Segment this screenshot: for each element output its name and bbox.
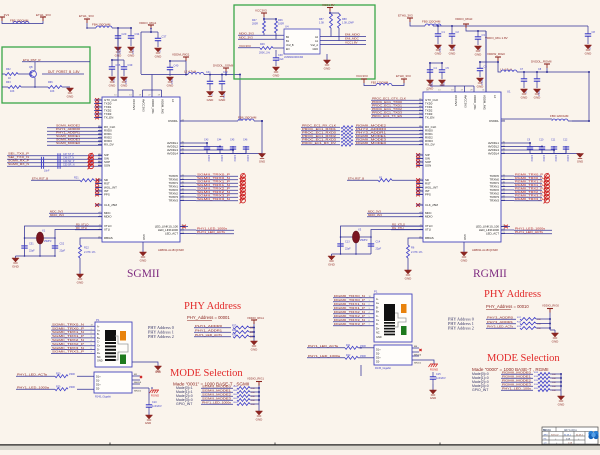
svg-text:PHY3_ADDR1: PHY3_ADDR1 <box>487 320 514 324</box>
svg-text:PHY1_LED_1000a: PHY1_LED_1000a <box>308 354 341 358</box>
svg-text:VDDM_RIG: VDDM_RIG <box>161 99 165 114</box>
svg-text:25MHz: 25MHz <box>44 240 52 243</box>
svg-text:100R: 100R <box>278 23 284 26</box>
svg-text:MDIO_3V3: MDIO_3V3 <box>50 213 64 217</box>
svg-text:B+: B+ <box>97 337 101 340</box>
svg-text:L1 4.7uH: L1 4.7uH <box>500 68 512 72</box>
svg-text:FB5 150OHM: FB5 150OHM <box>10 19 29 23</box>
svg-text:C13: C13 <box>345 241 350 244</box>
svg-text:U4: U4 <box>285 25 289 29</box>
svg-text:LX: LX <box>493 95 497 98</box>
svg-text:VCC3V3: VCC3V3 <box>454 95 458 106</box>
svg-text:TX_EN: TX_EN <box>104 116 113 120</box>
svg-text:AR7.1v4Qxx: AR7.1v4Qxx <box>564 429 578 432</box>
svg-text:FB6 150OHM: FB6 150OHM <box>238 116 257 120</box>
svg-text:GND: GND <box>461 259 469 263</box>
svg-text:FB4 150OHM: FB4 150OHM <box>92 23 111 27</box>
svg-text:D2+: D2+ <box>376 357 381 360</box>
svg-text:D-: D- <box>376 323 379 326</box>
svg-text:100nF: 100nF <box>542 155 545 162</box>
svg-text:C-: C- <box>97 341 100 344</box>
svg-text:PHY1_LED_ACTs: PHY1_LED_ACTs <box>197 230 226 234</box>
svg-text:GND: GND <box>521 96 529 100</box>
svg-text:GND: GND <box>475 53 483 57</box>
svg-text:GND: GND <box>312 48 318 51</box>
svg-text:PPS: PPS <box>425 193 431 197</box>
svg-text:RGMII_MODE3: RGMII_MODE3 <box>502 382 532 386</box>
svg-text:SHLD1: SHLD1 <box>134 390 142 392</box>
svg-text:AVDDL4: AVDDL4 <box>488 152 499 156</box>
svg-text:RGMII: RGMII <box>473 268 507 280</box>
svg-text:C40: C40 <box>174 63 179 67</box>
svg-text:GND: GND <box>256 418 264 422</box>
svg-text:PHY Address: PHY Address <box>184 301 241 312</box>
svg-text:MODE Selection: MODE Selection <box>487 353 560 364</box>
svg-text:100nF: 100nF <box>554 155 557 162</box>
svg-text:GND: GND <box>142 234 146 240</box>
svg-text:10K: 10K <box>10 90 15 93</box>
svg-text:P1: P1 <box>96 318 100 322</box>
svg-text:PHY1_ADDR0: PHY1_ADDR0 <box>195 324 223 328</box>
svg-text:DVDDL_RGMII: DVDDL_RGMII <box>531 60 552 64</box>
svg-text:VDDIO_RIG1: VDDIO_RIG1 <box>247 377 264 381</box>
svg-text:PROC_EC1_RX_DV: PROC_EC1_RX_DV <box>302 141 336 145</box>
svg-text:1nF/2KV: 1nF/2KV <box>152 405 162 408</box>
svg-text:GND: GND <box>552 340 560 344</box>
svg-text:GND: GND <box>273 74 281 78</box>
svg-text:C+: C+ <box>376 319 380 322</box>
svg-text:A+: A+ <box>97 329 101 332</box>
svg-text:VCC1.8V: VCC1.8V <box>345 41 358 45</box>
svg-text:GND: GND <box>577 160 583 164</box>
svg-text:ETH1_3V3: ETH1_3V3 <box>79 14 94 18</box>
svg-text:GND: GND <box>463 234 467 240</box>
svg-text:C4: C4 <box>434 66 438 70</box>
svg-text:D2+: D2+ <box>96 384 101 387</box>
svg-text:FB0 120OHM: FB0 120OHM <box>422 20 441 24</box>
svg-text:RGND: RGND <box>151 394 159 398</box>
svg-text:1K: 1K <box>8 77 11 80</box>
svg-text:22pF: 22pF <box>29 250 35 253</box>
svg-text:GND: GND <box>155 370 161 374</box>
svg-text:GND: GND <box>140 259 148 263</box>
svg-text:GPIO_INT: GPIO_INT <box>472 388 489 392</box>
svg-text:GND: GND <box>219 98 227 102</box>
svg-text:TRXN3: TRXN3 <box>490 199 500 203</box>
svg-text:2.37K 1%: 2.37K 1% <box>84 250 96 254</box>
svg-text:VDDO_RIG: VDDO_RIG <box>151 99 155 114</box>
svg-text:GND: GND <box>121 84 129 88</box>
svg-text:C10: C10 <box>539 139 544 142</box>
svg-text:GND: GND <box>430 396 436 400</box>
svg-text:AVDDL4: AVDDL4 <box>167 152 178 156</box>
svg-text:C8: C8 <box>592 30 596 34</box>
svg-text:R22: R22 <box>84 246 89 250</box>
svg-text:RJ45_Gigabit: RJ45_Gigabit <box>375 366 391 370</box>
svg-text:100nF: 100nF <box>220 155 223 162</box>
svg-text:D1+: D1+ <box>376 349 381 352</box>
svg-text:1.5K_DNP: 1.5K_DNP <box>342 22 354 25</box>
svg-text:XTLI: XTLI <box>425 228 431 232</box>
svg-text:U1: U1 <box>507 90 511 94</box>
svg-text:D2-: D2- <box>376 361 380 364</box>
svg-text:MODE Selection: MODE Selection <box>170 368 243 379</box>
svg-text:C10: C10 <box>152 401 157 404</box>
svg-text:GND: GND <box>324 67 332 71</box>
svg-text:GND: GND <box>97 360 103 363</box>
svg-text:D1-: D1- <box>96 380 100 383</box>
svg-text:RJ45_Gigabit: RJ45_Gigabit <box>95 395 111 399</box>
svg-text:GND: GND <box>405 277 413 281</box>
svg-text:P1: P1 <box>374 290 378 294</box>
svg-text:GND: GND <box>67 95 75 99</box>
svg-text:TX_EN: TX_EN <box>425 116 434 120</box>
svg-text:VCC3V3: VCC3V3 <box>356 74 368 78</box>
svg-text:RGND: RGND <box>430 368 438 372</box>
svg-text:PHY1_LED_ACTa: PHY1_LED_ACTa <box>308 344 339 348</box>
svg-text:GND: GND <box>435 52 443 56</box>
svg-text:2.37K 1%: 2.37K 1% <box>411 250 423 254</box>
svg-text:9070.07: 9070.07 <box>551 434 559 436</box>
svg-text:A-: A- <box>97 326 100 329</box>
svg-text:PHY3_ADDR0: PHY3_ADDR0 <box>487 315 514 319</box>
svg-text:C14: C14 <box>376 241 381 244</box>
svg-text:9%: 9% <box>544 439 547 441</box>
svg-text:GND: GND <box>376 336 382 339</box>
svg-text:PHY1_LED_1000s: PHY1_LED_1000s <box>202 400 232 404</box>
svg-text:GND: GND <box>477 85 485 89</box>
svg-text:NC: NC <box>97 356 101 359</box>
svg-text:RGMII_MODE0: RGMII_MODE0 <box>502 370 532 374</box>
svg-text:GND: GND <box>109 84 117 88</box>
svg-text:B-: B- <box>376 306 379 309</box>
svg-text:PHY_Address = 00001: PHY_Address = 00001 <box>187 315 230 320</box>
svg-text:GND: GND <box>145 421 151 425</box>
svg-text:C1: C1 <box>442 30 446 34</box>
svg-text:SGMII_MODE1: SGMII_MODE1 <box>202 388 232 392</box>
svg-text:C2: C2 <box>456 30 460 34</box>
svg-text:SGMII_MODE2: SGMII_MODE2 <box>202 392 232 396</box>
svg-text:C45: C45 <box>230 139 235 142</box>
svg-text:10K: 10K <box>50 90 55 93</box>
svg-text:Q8: Q8 <box>29 65 33 69</box>
svg-text:SGMII_MODE0: SGMII_MODE0 <box>202 384 232 388</box>
svg-text:VDDM_RIG: VDDM_RIG <box>483 95 487 110</box>
svg-text:C34: C34 <box>135 32 140 36</box>
svg-text:GND: GND <box>558 403 566 407</box>
svg-text:VCC1.8V: VCC1.8V <box>322 3 335 7</box>
svg-text:VCC3V3: VCC3V3 <box>239 44 251 48</box>
svg-text:VDDO_RIG 1.8V: VDDO_RIG 1.8V <box>485 36 508 40</box>
svg-text:150R: 150R <box>69 386 75 389</box>
svg-text:PHY Address 2: PHY Address 2 <box>148 334 174 339</box>
svg-text:100nF: 100nF <box>530 155 533 162</box>
svg-text:C50 SR_N: C50 SR_N <box>63 164 75 167</box>
svg-text:PHY3_LED_ACTs: PHY3_LED_ACTs <box>487 324 514 328</box>
svg-text:D+: D+ <box>97 352 101 355</box>
svg-text:DVDDL: DVDDL <box>168 119 178 123</box>
svg-text:GPIO_INT: GPIO_INT <box>176 402 193 406</box>
svg-text:D+: D+ <box>376 327 380 330</box>
svg-text:D2-: D2- <box>96 388 100 391</box>
svg-text:SGMII_TRX3_N: SGMII_TRX3_N <box>197 197 230 201</box>
svg-text:VDDO_RIG1: VDDO_RIG1 <box>139 21 157 25</box>
svg-text:1nF/2KV: 1nF/2KV <box>436 377 446 380</box>
svg-text:100nF: 100nF <box>566 155 569 162</box>
svg-text:SON: SON <box>425 164 431 168</box>
svg-text:CLK_25M: CLK_25M <box>104 203 117 207</box>
svg-text:LED_ACT: LED_ACT <box>486 232 499 236</box>
svg-text:ETH_RST_B: ETH_RST_B <box>32 176 48 180</box>
svg-text:GND: GND <box>155 55 163 59</box>
svg-text:22pF: 22pF <box>60 250 66 253</box>
svg-text:GND: GND <box>128 54 136 58</box>
svg-text:100nF: 100nF <box>233 155 236 162</box>
svg-text:GND: GND <box>251 348 259 352</box>
svg-text:TRXN3: TRXN3 <box>169 199 179 203</box>
svg-text:R66: R66 <box>48 81 53 84</box>
svg-text:64.09.2: 64.09.2 <box>576 434 584 436</box>
svg-text:200R: 200R <box>252 23 258 26</box>
svg-text:PHY Address 2: PHY Address 2 <box>448 325 474 330</box>
svg-text:C20: C20 <box>122 32 127 36</box>
svg-text:VDDIO_RIG1: VDDIO_RIG1 <box>247 316 264 320</box>
svg-text:VCC3V3: VCC3V3 <box>132 99 136 110</box>
svg-text:ETH_RST_R: ETH_RST_R <box>23 58 41 62</box>
svg-text:C15: C15 <box>436 373 441 376</box>
svg-text:C38: C38 <box>278 54 283 57</box>
svg-text:B-: B- <box>97 333 100 336</box>
svg-text:SHLD0: SHLD0 <box>134 382 142 384</box>
svg-text:GND: GND <box>585 52 593 56</box>
svg-text:25MHz: 25MHz <box>360 239 368 242</box>
svg-text:MDC_3V3: MDC_3V3 <box>239 36 253 40</box>
svg-text:SGMII_MODE0: SGMII_MODE0 <box>56 141 81 145</box>
svg-text:GND: GND <box>77 281 85 285</box>
svg-text:PHY1_LED_1000a: PHY1_LED_1000a <box>17 385 50 389</box>
svg-text:PHY1_LED_ACTa: PHY1_LED_ACTa <box>17 372 48 376</box>
svg-text:VCC3V3: VCC3V3 <box>255 9 267 13</box>
svg-text:GND: GND <box>449 52 457 56</box>
svg-text:R21: R21 <box>74 176 79 179</box>
svg-text:NC: NC <box>376 332 380 335</box>
svg-text:C6: C6 <box>484 64 488 68</box>
svg-text:100nF: 100nF <box>246 155 249 162</box>
svg-text:C39: C39 <box>128 63 133 67</box>
svg-text:RBIAS: RBIAS <box>425 236 434 240</box>
svg-text:C-: C- <box>376 315 379 318</box>
svg-text:BEI.CA: BEI.CA <box>543 429 551 432</box>
svg-text:RGMII_MODE2: RGMII_MODE2 <box>502 378 532 382</box>
svg-text:GND: GND <box>328 263 336 267</box>
svg-text:X3: X3 <box>358 228 362 232</box>
svg-text:R6: R6 <box>411 246 415 250</box>
svg-text:ETH0_3V3: ETH0_3V3 <box>398 14 413 18</box>
svg-text:XTLI: XTLI <box>104 228 110 232</box>
svg-text:150R: 150R <box>69 373 75 376</box>
svg-text:FB0 120OHM: FB0 120OHM <box>550 114 569 118</box>
svg-text:LX: LX <box>171 99 175 102</box>
svg-text:A-: A- <box>376 298 379 301</box>
svg-text:22pF: 22pF <box>376 248 382 251</box>
svg-text:C12: C12 <box>563 139 568 142</box>
svg-text:C36: C36 <box>116 63 121 67</box>
svg-text:PHY Address: PHY Address <box>484 289 541 300</box>
svg-text:RGMII_MODE0: RGMII_MODE0 <box>356 141 387 145</box>
svg-text:PROC_EC1_TX_EN: PROC_EC1_TX_EN <box>372 114 402 118</box>
svg-text:RX_DV: RX_DV <box>104 143 114 147</box>
svg-text:R63: R63 <box>6 81 11 84</box>
svg-text:3V3: 3V3 <box>4 13 10 17</box>
svg-text:22pF: 22pF <box>345 248 351 251</box>
svg-text:GND: GND <box>207 98 215 102</box>
svg-text:GND: GND <box>167 84 175 88</box>
svg-text:SGMII_TRX3_P: SGMII_TRX3_P <box>52 350 84 354</box>
svg-text:DVDDL: DVDDL <box>489 119 499 123</box>
svg-text:PPS: PPS <box>104 193 110 197</box>
svg-text:AR8031-AL1B QFN48: AR8031-AL1B QFN48 <box>158 248 184 252</box>
svg-text:SGMII_MODE3: SGMII_MODE3 <box>202 396 232 400</box>
svg-text:64.08.1: 64.08.1 <box>564 434 572 436</box>
svg-text:VDDIO_RIG0: VDDIO_RIG0 <box>542 304 559 308</box>
svg-text:C11: C11 <box>551 139 556 142</box>
svg-text:AVCC3V3: AVCC3V3 <box>142 99 146 112</box>
svg-text:MDIO: MDIO <box>425 215 433 219</box>
svg-text:PHY1_LED_100s: PHY1_LED_100s <box>502 386 532 390</box>
svg-text:R49: R49 <box>260 43 265 46</box>
svg-text:RGMII_TRX3_N: RGMII_TRX3_N <box>515 197 543 201</box>
svg-text:ETH_RST_B: ETH_RST_B <box>348 176 364 180</box>
svg-text:PHY1_ADDR1: PHY1_ADDR1 <box>195 328 223 332</box>
svg-text:RGMII_MODE1: RGMII_MODE1 <box>502 374 532 378</box>
svg-text:DVDDL_SGMII: DVDDL_SGMII <box>213 64 234 68</box>
svg-text:Vraf_B: Vraf_B <box>286 44 294 47</box>
svg-text:C46: C46 <box>243 139 248 142</box>
svg-text:SGMII: SGMII <box>127 268 160 280</box>
svg-text:RX_DV: RX_DV <box>425 143 435 147</box>
svg-text:PHY1_LED_ACTs: PHY1_LED_ACTs <box>515 230 544 234</box>
svg-text:DUT_PORST_B_1.8V: DUT_PORST_B_1.8V <box>48 70 80 74</box>
svg-text:Vref_A: Vref_A <box>310 44 318 47</box>
svg-text:EN: EN <box>286 48 290 51</box>
svg-text:X1: X1 <box>42 229 46 233</box>
svg-text:GND: GND <box>115 54 123 58</box>
svg-text:D1-: D1- <box>376 353 380 356</box>
svg-text:LED_ACT: LED_ACT <box>165 232 178 236</box>
svg-text:MDIO: MDIO <box>104 215 112 219</box>
svg-text:C42: C42 <box>223 71 228 74</box>
svg-text:C5: C5 <box>446 66 450 70</box>
svg-text:RBIAS: RBIAS <box>104 236 113 240</box>
svg-text:C43: C43 <box>204 139 209 142</box>
svg-text:A+: A+ <box>376 302 380 305</box>
svg-text:C37: C37 <box>162 34 167 38</box>
svg-text:D-: D- <box>97 348 100 351</box>
svg-text:GND: GND <box>534 96 542 100</box>
svg-text:SHLD1: SHLD1 <box>414 363 422 365</box>
svg-text:AR8031-AL1B QFN48: AR8031-AL1B QFN48 <box>472 248 498 252</box>
svg-text:R62: R62 <box>6 68 11 71</box>
svg-text:1.5K: 1.5K <box>319 22 324 25</box>
svg-text:100nF: 100nF <box>207 155 210 162</box>
svg-text:ETH1_3V3: ETH1_3V3 <box>36 13 51 17</box>
svg-text:200K_1%: 200K_1% <box>259 52 271 55</box>
svg-text:ETH0_3V3: ETH0_3V3 <box>396 74 411 78</box>
svg-text:10nF: 10nF <box>44 170 50 173</box>
svg-text:MDIO_3V3: MDIO_3V3 <box>368 213 382 217</box>
svg-text:GND: GND <box>259 160 265 164</box>
svg-text:VDDO_RIG: VDDO_RIG <box>473 95 477 110</box>
svg-text:VDDW_RIG0: VDDW_RIG0 <box>487 52 505 56</box>
svg-text:B+: B+ <box>376 311 380 314</box>
svg-text:SHLD0: SHLD0 <box>414 355 422 357</box>
svg-text:D1+: D1+ <box>96 376 101 379</box>
svg-text:SGMII_RX_N: SGMII_RX_N <box>8 162 29 166</box>
svg-text:C44: C44 <box>217 139 222 142</box>
svg-text:C52: C52 <box>60 243 65 246</box>
svg-text:C+: C+ <box>97 345 101 348</box>
svg-text:GND: GND <box>12 265 20 269</box>
svg-text:C51: C51 <box>29 243 34 246</box>
svg-text:VDDM_RIG1: VDDM_RIG1 <box>172 53 190 57</box>
svg-text:CLK_25M: CLK_25M <box>425 203 438 207</box>
svg-text:RGMII_TRX3_P: RGMII_TRX3_P <box>334 322 365 326</box>
svg-text:SON: SON <box>104 164 110 168</box>
svg-text:VDDO_RIG0: VDDO_RIG0 <box>455 17 473 21</box>
svg-text:PHY1_LED_ACTs: PHY1_LED_ACTs <box>195 333 223 337</box>
svg-text:PHY_Address = 00010: PHY_Address = 00010 <box>486 304 529 309</box>
svg-text:AVCC3V3: AVCC3V3 <box>464 95 468 108</box>
svg-text:C41: C41 <box>206 71 211 74</box>
svg-text:150R: 150R <box>360 355 366 358</box>
svg-text:LMS66100DCKR: LMS66100DCKR <box>284 56 303 59</box>
